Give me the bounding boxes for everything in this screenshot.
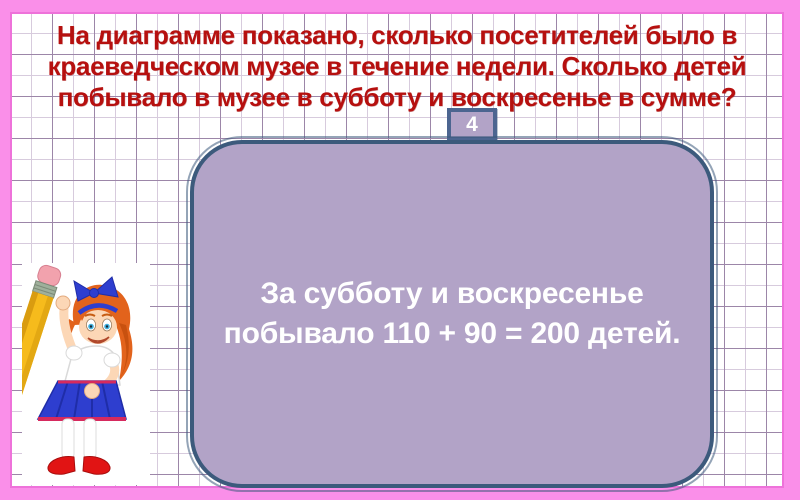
question-line-1: На диаграмме показано, сколько посетител… (10, 20, 784, 51)
answer-text: За субботу и воскресенье побывало 110 + … (224, 274, 681, 354)
girl-with-pencil-icon (22, 263, 150, 485)
slide-number-badge: 4 (447, 108, 497, 141)
girl-with-pencil-illustration (22, 263, 150, 485)
answer-line-1: За субботу и воскресенье (224, 274, 681, 314)
answer-line-2: побывало 110 + 90 = 200 детей. (224, 314, 681, 354)
answer-panel: За субботу и воскресенье побывало 110 + … (190, 140, 714, 488)
question-line-2: краеведческом музее в течение недели. Ск… (10, 51, 784, 82)
question-text: На диаграмме показано, сколько посетител… (10, 20, 784, 113)
question-line-3: побывало в музее в субботу и воскресенье… (10, 82, 784, 113)
slide-frame: На диаграмме показано, сколько посетител… (0, 0, 800, 500)
slide-canvas: На диаграмме показано, сколько посетител… (10, 12, 784, 488)
